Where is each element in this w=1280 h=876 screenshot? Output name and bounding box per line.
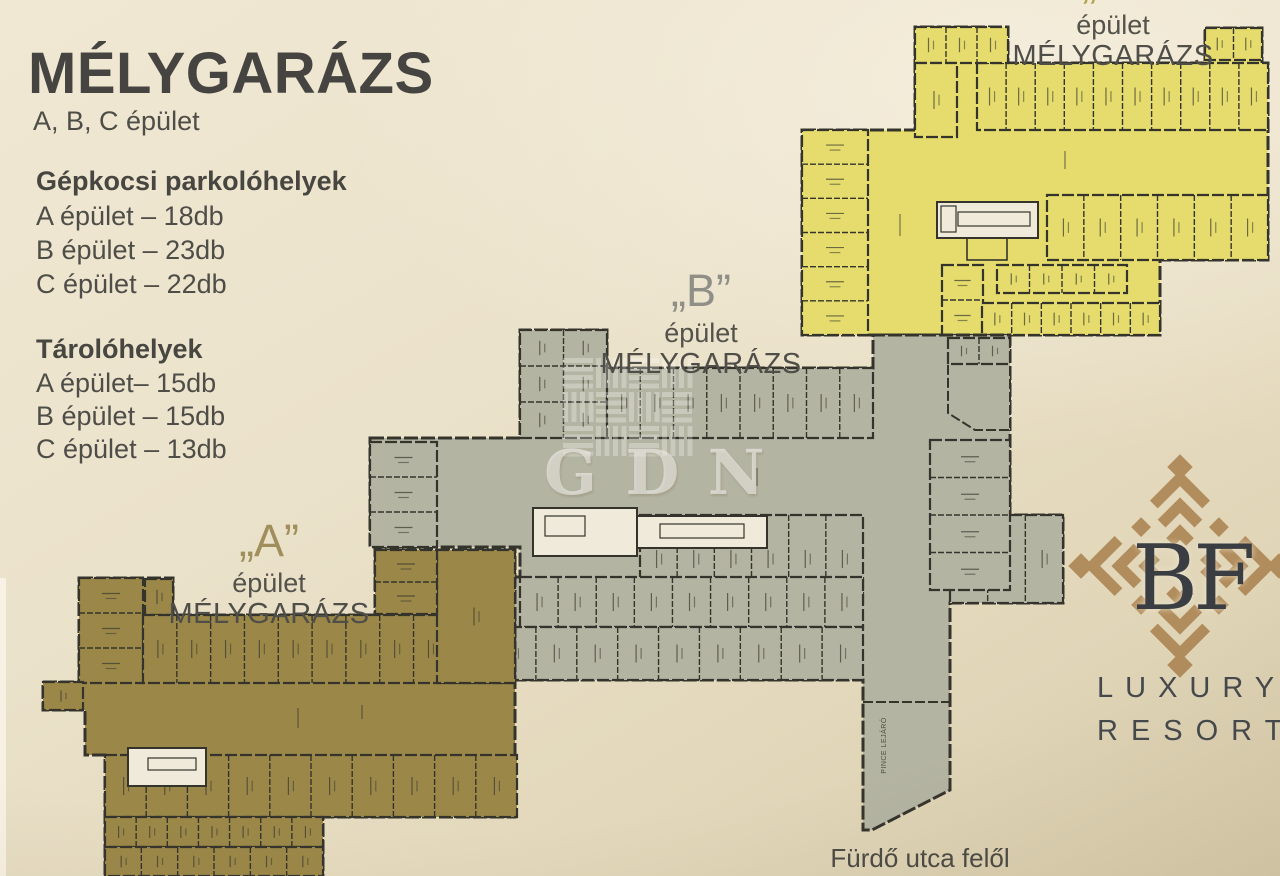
- lift-core: [937, 202, 1038, 238]
- building-c-letter: „C”: [1008, 0, 1218, 8]
- parking-count-b: B épület – 23db: [36, 235, 225, 266]
- page-title: MÉLYGARÁZS: [28, 40, 434, 107]
- storage-heading: Tárolóhelyek: [36, 334, 203, 365]
- street-label: Fürdő utca felől: [790, 843, 1050, 874]
- lift-core: [128, 748, 206, 786]
- ramp-label: PINCE LEJÁRÓ: [881, 717, 888, 774]
- boiler-room: [948, 363, 1010, 430]
- parking-count-a: A épület – 18db: [36, 201, 224, 232]
- parking-heading: Gépkocsi parkolóhelyek: [36, 166, 347, 197]
- gdn-watermark: GDN: [544, 436, 793, 509]
- parking-row: [105, 817, 323, 847]
- building-a-label: „A” épület MÉLYGARÁZS: [164, 516, 374, 630]
- building-b-sublabel: épület: [596, 319, 806, 348]
- storage-count-c: C épület – 13db: [36, 434, 227, 465]
- building-c-sublabel: épület: [1008, 11, 1218, 40]
- building-c-plan: [802, 27, 1268, 335]
- page-subtitle: A, B, C épület: [33, 106, 200, 137]
- floor-plan-poster: MÉLYGARÁZS A, B, C épület Gépkocsi parko…: [0, 0, 1280, 876]
- building-c-type: MÉLYGARÁZS: [1008, 40, 1218, 72]
- logo-word-resort: RESORT: [1097, 715, 1280, 748]
- photo-edge: [0, 578, 6, 876]
- lift-core: [637, 516, 767, 548]
- parking-row: [43, 682, 83, 710]
- building-a-sublabel: épület: [164, 569, 374, 598]
- building-a-type: MÉLYGARÁZS: [164, 598, 374, 630]
- parking-row: [495, 627, 863, 680]
- parking-count-c: C épület – 22db: [36, 269, 227, 300]
- parking-row: [437, 550, 515, 683]
- storage-count-b: B épület – 15db: [36, 401, 225, 432]
- parking-row: [915, 63, 957, 137]
- building-a-letter: „A”: [164, 516, 374, 566]
- logo-word-luxury: LUXURY: [1097, 672, 1280, 705]
- building-b-label: „B” épület MÉLYGARÁZS: [596, 266, 806, 380]
- logo-initials: BF: [1132, 526, 1251, 631]
- parking-row: [520, 577, 863, 627]
- building-c-label: „C” épület MÉLYGARÁZS: [1008, 0, 1218, 72]
- building-b-type: MÉLYGARÁZS: [596, 348, 806, 380]
- building-b-letter: „B”: [596, 266, 806, 316]
- storage-count-a: A épület– 15db: [36, 368, 216, 399]
